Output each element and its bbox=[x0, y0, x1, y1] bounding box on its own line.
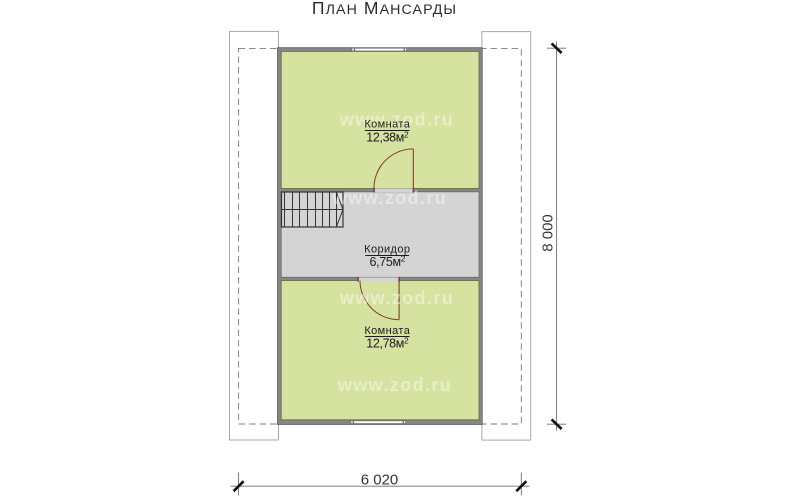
svg-text:www.zod.ru: www.zod.ru bbox=[337, 375, 452, 395]
svg-text:8 000: 8 000 bbox=[539, 214, 556, 252]
svg-text:6,75м2: 6,75м2 bbox=[370, 254, 406, 269]
svg-text:12,38м2: 12,38м2 bbox=[366, 130, 409, 145]
svg-text:www.zod.ru: www.zod.ru bbox=[332, 188, 447, 208]
svg-text:12,78м2: 12,78м2 bbox=[366, 336, 409, 351]
svg-text:6 020: 6 020 bbox=[361, 472, 399, 489]
svg-text:ПЛАН МАНСАРДЫ: ПЛАН МАНСАРДЫ bbox=[312, 0, 457, 18]
svg-text:www.zod.ru: www.zod.ru bbox=[339, 288, 454, 308]
